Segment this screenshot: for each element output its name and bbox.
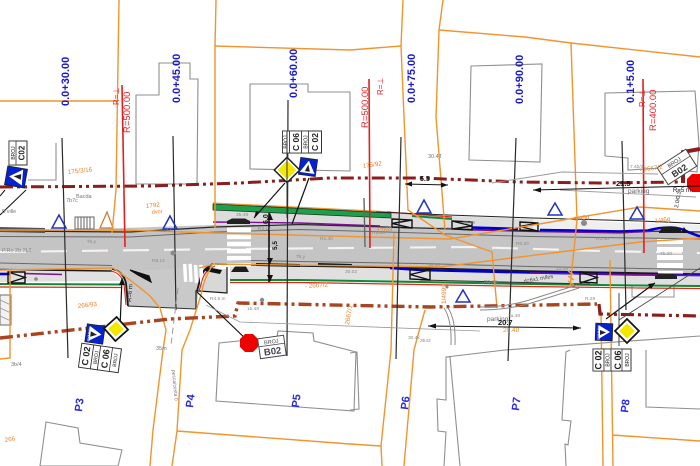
svg-text:2b.02: 2b.02 <box>440 226 452 232</box>
svg-text:R=400.00: R=400.00 <box>648 90 659 131</box>
svg-text:BROJ: BROJ <box>11 146 17 160</box>
svg-text:R=⊥: R=⊥ <box>112 88 121 105</box>
svg-text:R0.48: R0.48 <box>484 279 497 285</box>
svg-text:0.1+5.00: 0.1+5.00 <box>625 60 637 103</box>
svg-text:35m: 35m <box>156 346 167 352</box>
svg-text:P8: P8 <box>619 399 633 414</box>
svg-text:R1.40: R1.40 <box>320 236 333 242</box>
svg-text:21.5: 21.5 <box>616 179 631 188</box>
svg-text:0.0+30.00: 0.0+30.00 <box>60 57 72 106</box>
svg-text:R1.20: R1.20 <box>372 230 385 236</box>
svg-text:R3.40: R3.40 <box>596 236 609 242</box>
svg-text:BROJ: BROJ <box>606 353 612 367</box>
svg-text:R=⊥: R=⊥ <box>638 90 647 107</box>
svg-text:7b.y: 7b.y <box>296 254 306 260</box>
svg-text:BROJ: BROJ <box>304 135 310 149</box>
svg-text:R=500.00: R=500.00 <box>360 87 371 128</box>
svg-text:7a7.c: 7a7.c <box>160 228 172 234</box>
svg-text:1b.48: 1b.48 <box>247 306 259 312</box>
svg-text:parking: parking <box>628 188 650 195</box>
svg-text:P7: P7 <box>510 397 524 412</box>
svg-text:C 06: C 06 <box>291 133 301 151</box>
svg-text:C 02: C 02 <box>594 350 604 369</box>
svg-text:7b.48: 7b.48 <box>463 220 475 226</box>
svg-text:C 02: C 02 <box>310 133 320 151</box>
svg-text:35.48: 35.48 <box>236 212 248 218</box>
svg-text:P4: P4 <box>184 393 198 409</box>
svg-text:B'ville: B'ville <box>2 209 16 215</box>
svg-text:Bacda: Bacda <box>76 194 93 200</box>
svg-text:30.02: 30.02 <box>345 269 357 275</box>
svg-text:10.48: 10.48 <box>556 266 568 272</box>
svg-text:R.28: R.28 <box>585 296 595 302</box>
svg-text:5.5: 5.5 <box>420 176 430 183</box>
svg-text:30.4T: 30.4T <box>428 154 443 160</box>
svg-text:R0.20: R0.20 <box>516 241 529 247</box>
svg-text:0.0+90.00: 0.0+90.00 <box>514 55 526 104</box>
svg-text:P3: P3 <box>73 398 87 413</box>
svg-text:CYMMIA: CYMMIA <box>597 325 602 340</box>
svg-text:R=500.00: R=500.00 <box>122 92 133 133</box>
svg-text:- 2667/2: - 2667/2 <box>305 282 329 290</box>
svg-text:0.0+75.00: 0.0+75.00 <box>406 54 418 103</box>
svg-text:3b43: 3b43 <box>420 338 431 344</box>
svg-text:C 06: C 06 <box>613 350 623 369</box>
svg-text:C02: C02 <box>18 145 27 160</box>
svg-text:R2.17: R2.17 <box>258 226 271 232</box>
svg-text:3a.48: 3a.48 <box>508 313 520 319</box>
svg-text:7b7c: 7b7c <box>66 198 78 204</box>
svg-text:R8.14: R8.14 <box>152 258 165 264</box>
svg-text:P6: P6 <box>399 396 413 411</box>
svg-text:P.Ro 2b.2LT: P.Ro 2b.2LT <box>2 248 32 254</box>
svg-text:R4.5 m: R4.5 m <box>210 296 225 302</box>
svg-text:7b.20: 7b.20 <box>660 251 672 257</box>
svg-text:6.0: 6.0 <box>263 214 270 224</box>
svg-text:7b.y: 7b.y <box>87 239 97 245</box>
svg-text:20.48: 20.48 <box>503 327 520 334</box>
svg-text:7.4b/1: 7.4b/1 <box>630 164 644 170</box>
svg-text:30.48: 30.48 <box>428 262 440 268</box>
svg-text:20.7: 20.7 <box>498 318 513 327</box>
svg-text:dvor: dvor <box>152 209 163 216</box>
svg-text:R=⊥: R=⊥ <box>376 78 385 95</box>
svg-text:P5: P5 <box>290 394 304 409</box>
svg-text:0.0+45.00: 0.0+45.00 <box>171 54 183 103</box>
svg-text:3b/4: 3b/4 <box>11 362 22 368</box>
svg-text:5,5: 5,5 <box>272 241 279 250</box>
svg-text:30.4x: 30.4x <box>408 335 420 341</box>
svg-text:0.0+60.00: 0.0+60.00 <box>288 49 300 98</box>
svg-text:BROJ: BROJ <box>625 353 631 367</box>
